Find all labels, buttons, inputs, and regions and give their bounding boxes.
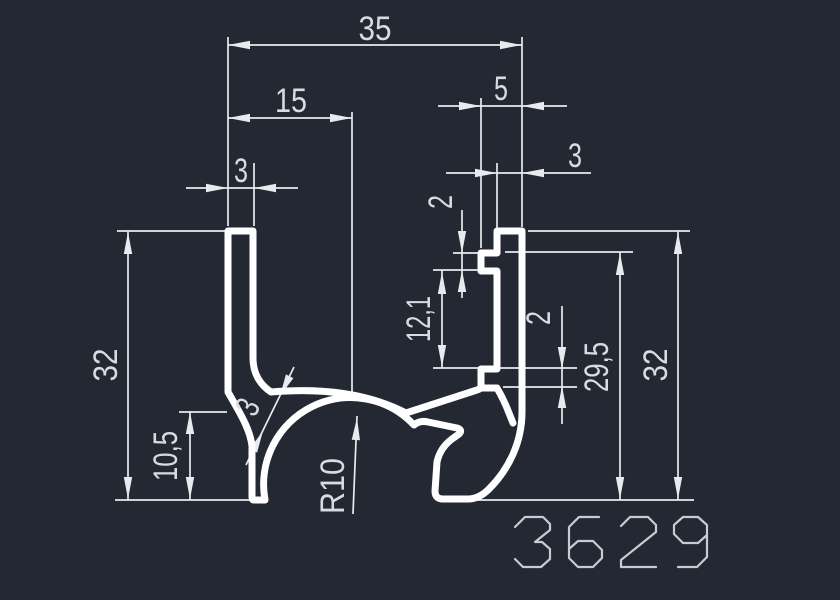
part-number: [515, 517, 707, 567]
dim-web-thickness: 3: [228, 393, 268, 422]
dimension-arrowhead: [458, 270, 466, 292]
dimension-arrowhead: [674, 232, 682, 254]
dimension-arrowhead: [558, 386, 566, 408]
dimension-arrowhead: [522, 169, 544, 177]
dimension-arrowhead: [558, 347, 566, 369]
dim-left-height: 32: [87, 349, 125, 382]
dimension-arrowhead: [616, 253, 624, 275]
cad-drawing: 35 15 3 5 3 2 12,1 2 10,5 32 29,5 32 R10…: [0, 0, 840, 600]
dimension-labels: 35 15 3 5 3 2 12,1 2 10,5 32 29,5 32 R10…: [87, 10, 675, 514]
dim-width-total: 35: [359, 10, 392, 48]
dimension-arrowhead: [616, 477, 624, 499]
dim-tab-gap: 12,1: [400, 296, 438, 342]
cad-canvas: 35 15 3 5 3 2 12,1 2 10,5 32 29,5 32 R10…: [0, 0, 840, 600]
dimension-arrowhead: [186, 477, 194, 499]
dim-width-left-to-center: 15: [275, 82, 307, 120]
dimension-arrowhead: [206, 184, 228, 192]
dim-bottom-tab-height: 2: [520, 311, 558, 325]
dimension-arrowhead: [458, 231, 466, 253]
dim-left-inner-height: 10,5: [147, 431, 185, 481]
dimension-arrowhead: [352, 418, 360, 440]
dim-right-inner-height: 29,5: [578, 342, 616, 392]
dim-right-top-width: 5: [494, 70, 508, 108]
dimension-arrowhead: [438, 345, 446, 367]
dimension-arrowhead: [186, 412, 194, 434]
dimension-arrowhead: [330, 114, 352, 122]
profile-outline: [228, 231, 522, 500]
dimension-and-extension-lines: [115, 37, 694, 514]
part-number-digit: [621, 517, 656, 567]
dimension-arrowhead: [228, 41, 250, 49]
dim-top-tab-height: 2: [422, 195, 460, 209]
part-number-digit: [515, 517, 550, 567]
dimension-arrowhead: [254, 184, 276, 192]
dimension-arrowhead: [475, 169, 497, 177]
part-number-digit: [569, 517, 602, 567]
dimension-arrowhead: [522, 102, 544, 110]
dimension-arrowhead: [500, 41, 522, 49]
dim-right-wall-thickness: 3: [568, 137, 582, 175]
dimension-arrowhead: [674, 477, 682, 499]
dimension-arrowhead: [124, 477, 132, 499]
dimension-arrowhead: [438, 272, 446, 294]
part-number-digit: [674, 517, 707, 567]
dim-arch-radius: R10: [314, 458, 352, 514]
dimension-arrowhead: [124, 232, 132, 254]
dimension-arrowhead: [459, 102, 481, 110]
dimension-arrowhead: [228, 114, 250, 122]
dim-right-height: 32: [637, 349, 675, 382]
arrowheads: [124, 41, 682, 499]
dim-left-wall-thickness: 3: [234, 152, 248, 190]
